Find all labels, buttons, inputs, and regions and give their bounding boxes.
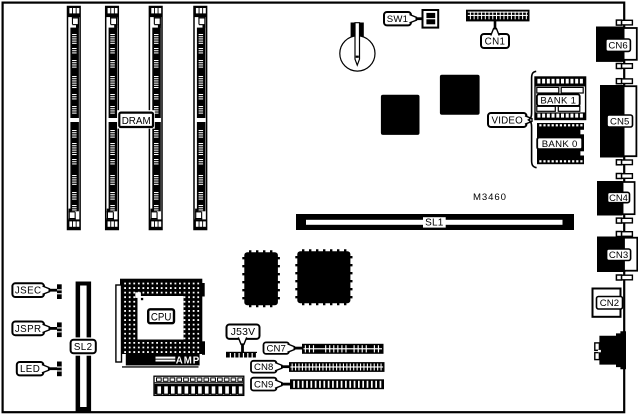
svg-text:JSPR: JSPR (15, 324, 42, 335)
svg-text:M3460: M3460 (473, 192, 507, 203)
svg-text:SL1: SL1 (425, 218, 444, 229)
svg-text:JSEC: JSEC (15, 286, 42, 297)
svg-text:CN2: CN2 (600, 298, 620, 309)
svg-text:CN4: CN4 (609, 192, 628, 203)
svg-text:CN3: CN3 (609, 250, 629, 261)
svg-text:BANK 1: BANK 1 (540, 96, 576, 107)
svg-text:CN1: CN1 (485, 36, 506, 47)
svg-text:CN5: CN5 (610, 116, 630, 127)
svg-text:LED: LED (20, 364, 40, 375)
svg-text:DRAM: DRAM (122, 115, 151, 127)
svg-text:CPU: CPU (151, 312, 172, 324)
svg-text:CN9: CN9 (254, 380, 274, 391)
svg-text:CN6: CN6 (608, 41, 628, 52)
svg-text:AMP: AMP (176, 356, 201, 367)
svg-text:CN8: CN8 (254, 362, 274, 373)
svg-text:VIDEO: VIDEO (492, 115, 524, 126)
svg-text:SW1: SW1 (387, 14, 408, 25)
svg-text:SL2: SL2 (74, 342, 93, 353)
svg-text:J53V: J53V (231, 327, 255, 338)
svg-text:CN7: CN7 (267, 344, 287, 355)
svg-text:BANK 0: BANK 0 (542, 139, 578, 150)
